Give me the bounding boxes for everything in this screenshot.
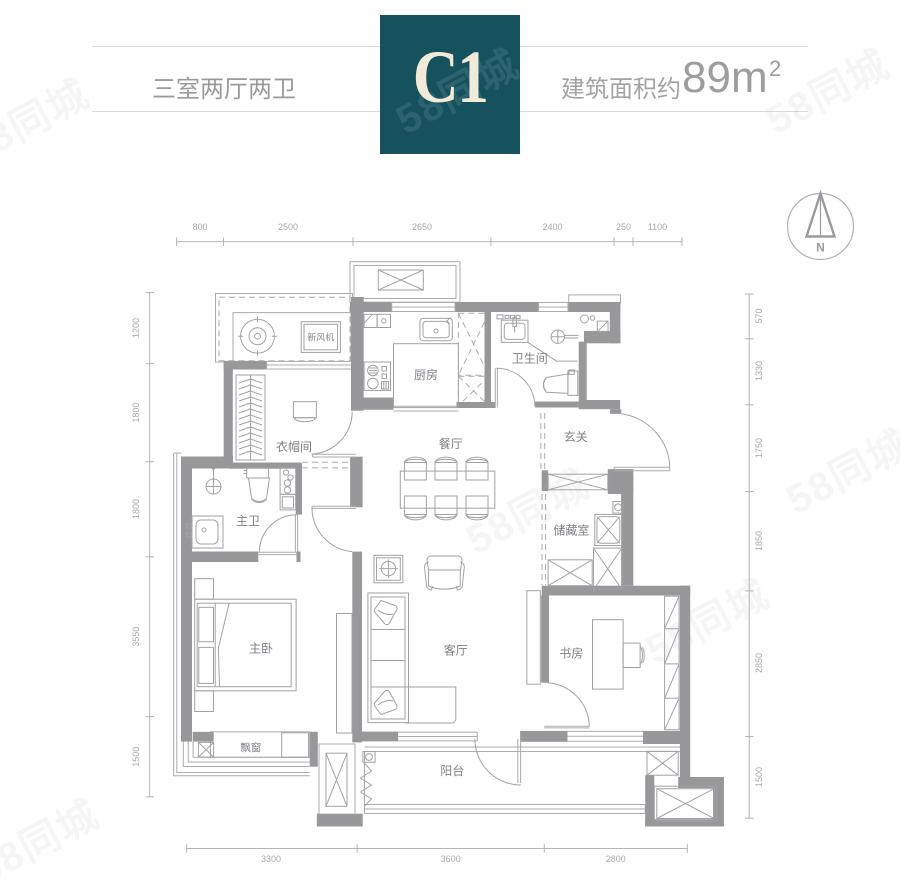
svg-text:570: 570 xyxy=(754,308,764,323)
svg-text:卫生间: 卫生间 xyxy=(512,352,548,366)
svg-text:阳台: 阳台 xyxy=(440,763,464,778)
svg-text:新风机: 新风机 xyxy=(307,332,334,343)
svg-text:1500: 1500 xyxy=(754,767,764,787)
svg-text:2650: 2650 xyxy=(412,222,432,232)
svg-text:800: 800 xyxy=(192,222,207,232)
svg-text:餐厅: 餐厅 xyxy=(439,436,463,451)
svg-text:厨房: 厨房 xyxy=(414,367,438,382)
svg-text:1850: 1850 xyxy=(754,531,764,551)
svg-text:1800: 1800 xyxy=(131,499,141,519)
svg-text:主卧: 主卧 xyxy=(249,642,273,656)
svg-text:1750: 1750 xyxy=(754,438,764,458)
svg-text:1200: 1200 xyxy=(131,318,141,338)
svg-text:N: N xyxy=(816,241,825,255)
svg-text:书房: 书房 xyxy=(559,646,583,661)
svg-text:2800: 2800 xyxy=(606,854,626,864)
svg-text:1330: 1330 xyxy=(754,361,764,381)
svg-text:1500: 1500 xyxy=(131,747,141,767)
svg-text:2500: 2500 xyxy=(278,222,298,232)
svg-text:3600: 3600 xyxy=(441,854,461,864)
svg-text:客厅: 客厅 xyxy=(444,643,468,658)
svg-text:飘窗: 飘窗 xyxy=(240,741,261,754)
svg-text:2850: 2850 xyxy=(754,653,764,673)
svg-text:1100: 1100 xyxy=(648,222,667,232)
svg-text:3550: 3550 xyxy=(131,627,141,647)
svg-text:1800: 1800 xyxy=(131,403,141,423)
svg-text:250: 250 xyxy=(616,222,631,232)
svg-text:玄关: 玄关 xyxy=(564,429,588,444)
svg-text:储藏室: 储藏室 xyxy=(553,523,589,538)
svg-text:2400: 2400 xyxy=(542,222,562,232)
svg-text:主卫: 主卫 xyxy=(236,514,260,528)
svg-text:3300: 3300 xyxy=(261,854,281,864)
svg-text:衣帽间: 衣帽间 xyxy=(276,439,312,454)
